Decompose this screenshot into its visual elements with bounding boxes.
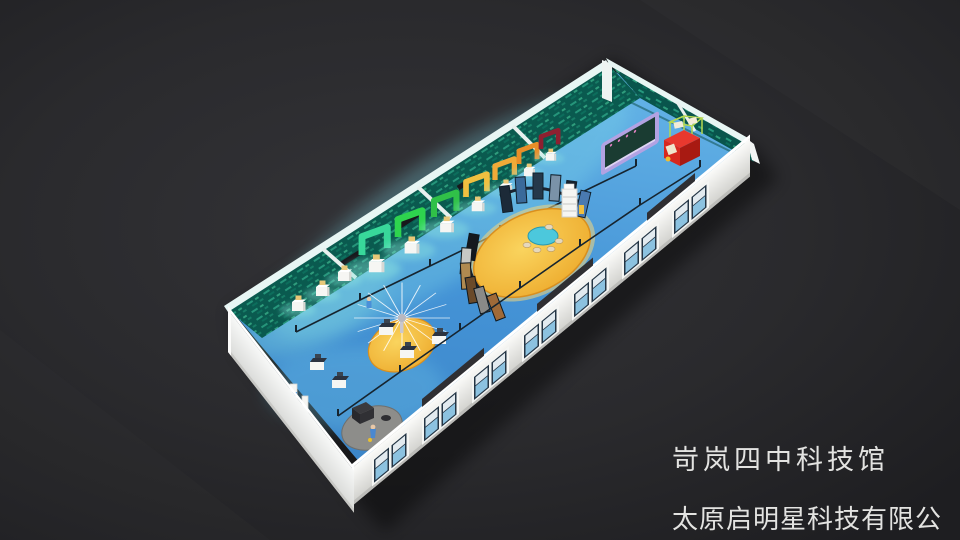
visitor-figure <box>367 297 372 308</box>
caption-hall-name: 岢岚四中科技馆 <box>672 438 960 477</box>
caption-company-name: 太原启明星科技有限公司 <box>672 499 960 540</box>
exhibition-hall-render: 岢岚四中科技馆 太原启明星科技有限公司 <box>0 0 960 540</box>
caption-block: 岢岚四中科技馆 太原启明星科技有限公司 <box>672 438 960 540</box>
figure-yellow <box>579 205 584 214</box>
corner-pillar <box>602 60 612 102</box>
chair <box>381 415 391 421</box>
